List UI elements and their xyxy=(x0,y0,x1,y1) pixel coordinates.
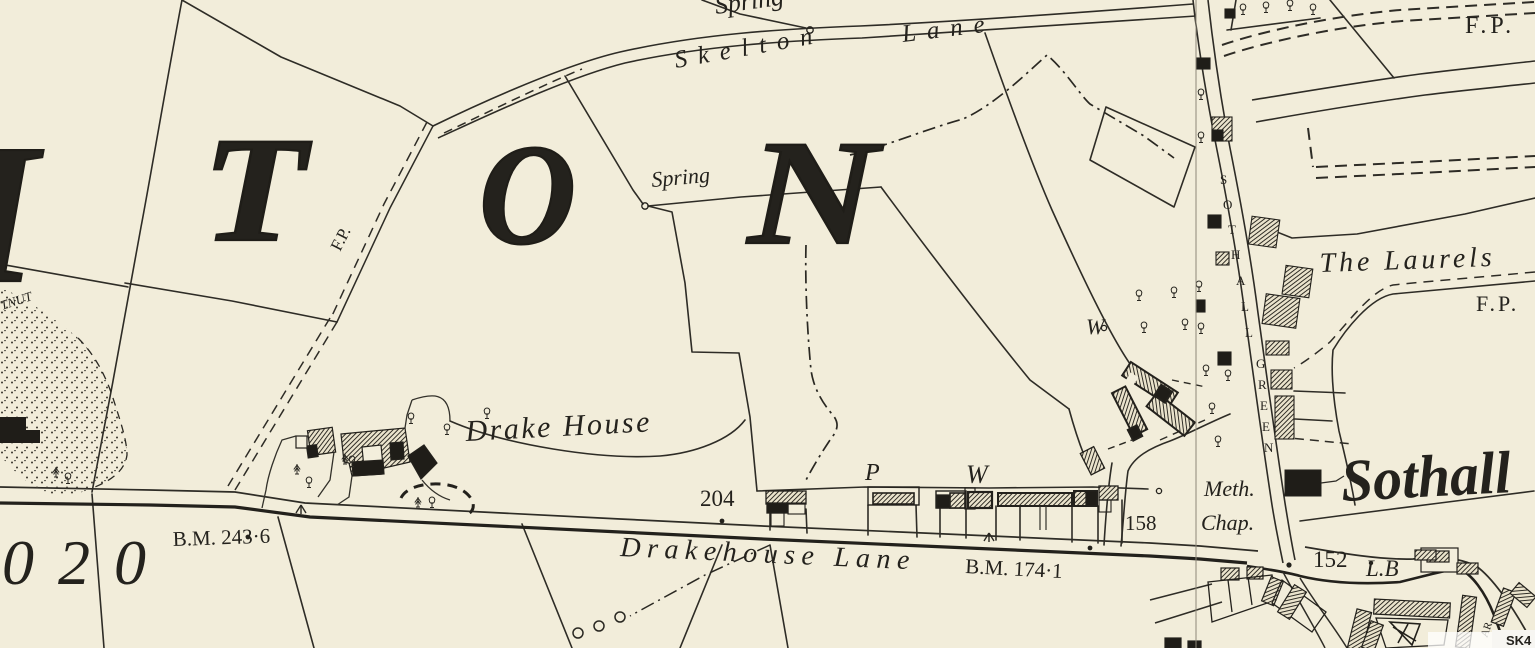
svg-text:T: T xyxy=(202,107,312,273)
svg-text:L.B: L.B xyxy=(1365,556,1399,581)
svg-text:B.M. 174·1: B.M. 174·1 xyxy=(965,554,1064,583)
svg-text:N: N xyxy=(1264,440,1274,455)
svg-text:H: H xyxy=(1231,247,1240,262)
svg-text:204: 204 xyxy=(700,486,735,511)
svg-text:P: P xyxy=(864,460,880,486)
svg-text:W: W xyxy=(1086,314,1106,339)
svg-text:SK4: SK4 xyxy=(1506,633,1532,648)
svg-text:A: A xyxy=(1236,273,1246,288)
svg-text:T: T xyxy=(1228,222,1236,237)
svg-text:020: 020 xyxy=(2,527,170,598)
svg-text:O: O xyxy=(1223,197,1232,212)
svg-text:B.M. 243·6: B.M. 243·6 xyxy=(172,524,270,551)
svg-text:Spring: Spring xyxy=(650,162,711,192)
svg-text:Chap.: Chap. xyxy=(1201,510,1254,535)
svg-text:Meth.: Meth. xyxy=(1203,476,1255,501)
svg-text:I: I xyxy=(0,104,44,325)
svg-text:L: L xyxy=(1245,325,1253,340)
svg-text:Sothall: Sothall xyxy=(1339,439,1513,514)
svg-text:O: O xyxy=(479,116,576,275)
svg-text:W: W xyxy=(966,460,990,489)
svg-text:E: E xyxy=(1260,398,1268,413)
svg-text:F.P.: F.P. xyxy=(1465,13,1515,39)
svg-text:S: S xyxy=(1220,172,1227,187)
svg-text:G: G xyxy=(1256,356,1265,371)
svg-text:158: 158 xyxy=(1125,511,1157,535)
svg-text:E: E xyxy=(1262,419,1270,434)
svg-text:152: 152 xyxy=(1313,547,1348,572)
svg-text:F.P.: F.P. xyxy=(1476,291,1519,316)
svg-text:L: L xyxy=(1241,299,1249,314)
svg-text:R: R xyxy=(1258,377,1267,392)
svg-text:N: N xyxy=(746,110,884,276)
